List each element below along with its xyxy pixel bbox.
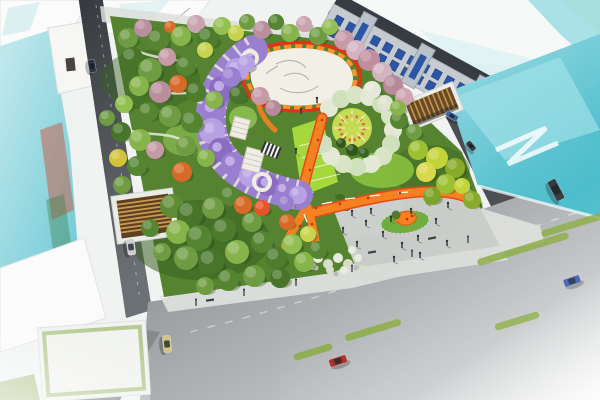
fade-bottom-right: [280, 140, 600, 400]
fade-bottom-left: [0, 330, 150, 400]
wisteria-highlight: [204, 123, 214, 133]
wisteria-highlight: [212, 142, 222, 152]
scene-canvas: [0, 0, 600, 400]
park-aerial-rendering: [0, 0, 600, 400]
wisteria-highlight: [225, 156, 235, 166]
path-dot: [321, 119, 324, 122]
entrance-door: [65, 58, 75, 72]
